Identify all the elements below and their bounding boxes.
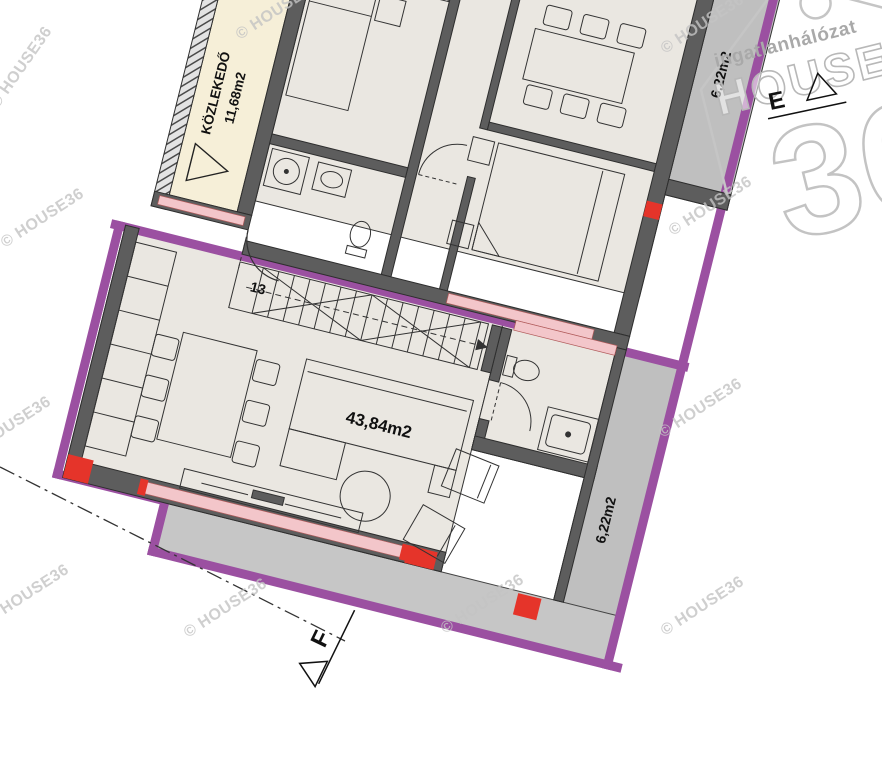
floor-plan-page: 13 KÖZLEKEDŐ 11,68m2	[0, 0, 882, 768]
floor-plan-canvas: 13 KÖZLEKEDŐ 11,68m2	[0, 0, 882, 768]
washing-machine-dot	[284, 169, 289, 174]
